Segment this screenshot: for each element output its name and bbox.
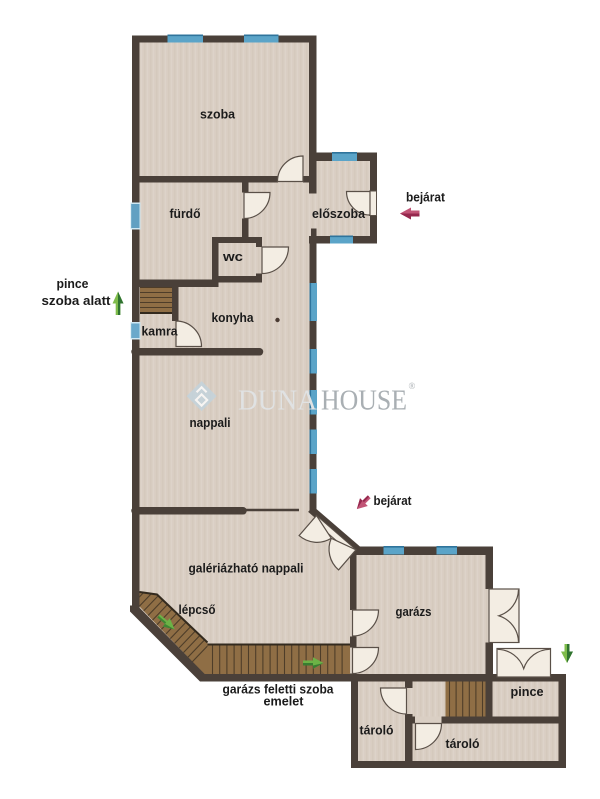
svg-text:®: ® [409, 381, 416, 391]
svg-text:szoba alatt: szoba alatt [42, 293, 112, 308]
svg-text:garázs: garázs [396, 604, 432, 619]
svg-text:fürdő: fürdő [170, 206, 201, 221]
svg-text:DUNA: DUNA [238, 386, 317, 417]
svg-text:tároló: tároló [446, 736, 480, 751]
svg-text:szoba: szoba [200, 107, 236, 122]
svg-text:emelet: emelet [264, 694, 305, 709]
svg-text:bejárat: bejárat [374, 493, 413, 508]
svg-text:konyha: konyha [212, 310, 255, 325]
svg-text:pince: pince [57, 276, 89, 291]
svg-text:lépcső: lépcső [179, 602, 216, 617]
svg-text:wc: wc [222, 249, 243, 264]
svg-text:tároló: tároló [360, 723, 394, 738]
svg-text:HOUSE: HOUSE [321, 386, 407, 417]
svg-text:kamra: kamra [142, 324, 179, 339]
svg-text:galériázható nappali: galériázható nappali [189, 561, 304, 576]
svg-text:pince: pince [511, 684, 544, 699]
svg-text:bejárat: bejárat [406, 190, 446, 205]
svg-text:előszoba: előszoba [312, 206, 366, 221]
svg-text:nappali: nappali [190, 415, 231, 430]
